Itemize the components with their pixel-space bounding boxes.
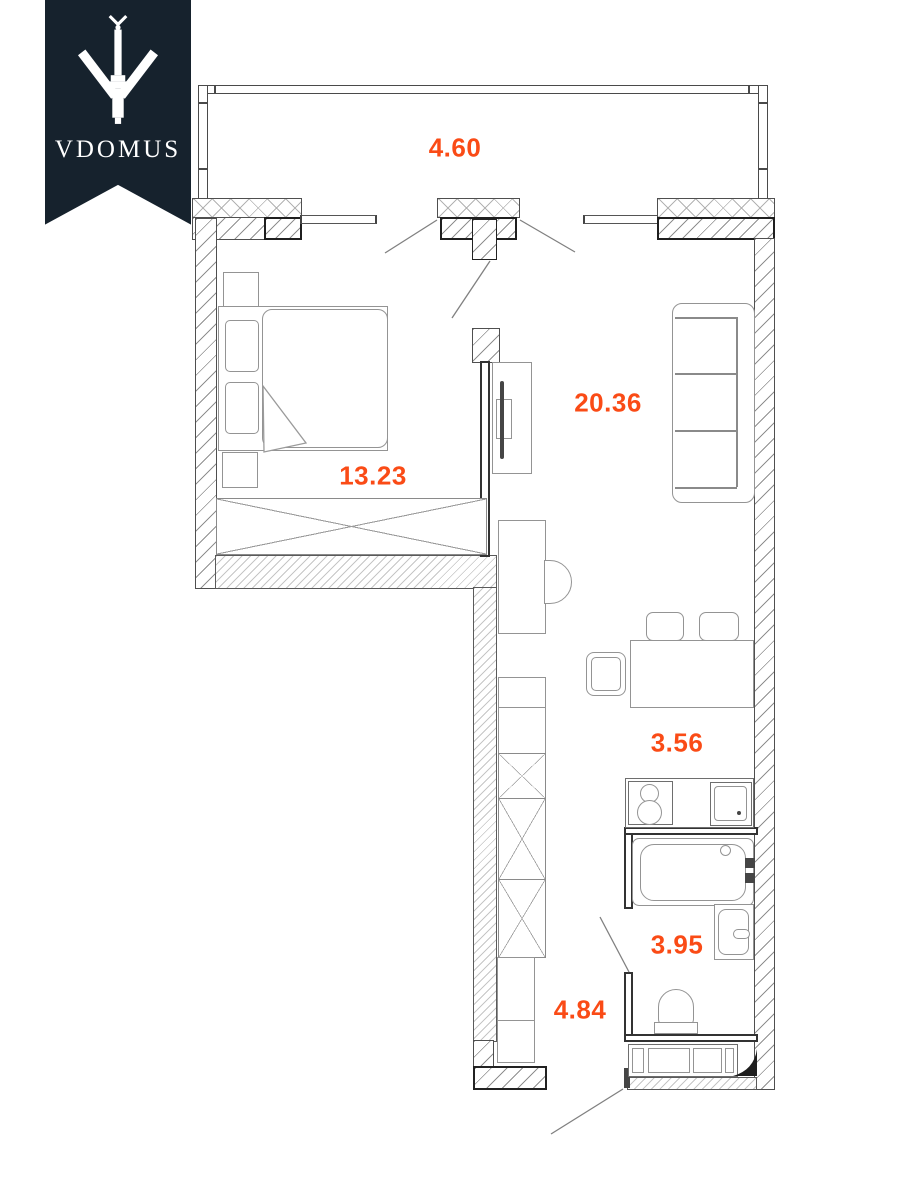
logo-banner: VDOMUS — [45, 0, 191, 234]
corridor-cabinet — [498, 707, 546, 754]
balcony-glazing-top — [200, 85, 767, 94]
corridor-wardrobe — [498, 753, 546, 799]
bathroom-wall-top — [624, 827, 758, 835]
sofa-backrest-line — [736, 317, 738, 487]
desk — [498, 520, 546, 634]
dining-table — [630, 640, 754, 708]
sofa-armrest-line — [675, 487, 737, 489]
balcony-glazing-right — [758, 85, 768, 215]
tv-mount — [496, 399, 512, 439]
corridor-cabinet — [497, 957, 535, 1021]
wall-corridor-left — [473, 587, 497, 1042]
balcony-door-swing-left — [385, 220, 437, 253]
kitchen-sink — [710, 782, 752, 826]
wall-left — [195, 218, 217, 589]
glazing-mullion — [758, 168, 768, 170]
bed-mattress — [262, 309, 388, 448]
entry-closet-door — [648, 1048, 690, 1073]
room-label-balcony: 4.60 — [429, 133, 482, 164]
balcony-door-stem — [472, 219, 497, 260]
living-window — [583, 215, 659, 224]
toilet-tank — [654, 1022, 698, 1034]
bathroom-wall-left-b — [624, 972, 633, 1037]
wall-top-right-block-inner — [657, 217, 775, 240]
entry-closet-door — [725, 1048, 734, 1073]
nightstand — [223, 272, 259, 308]
bathroom-door-swing — [600, 917, 629, 972]
partition-pier — [472, 328, 500, 363]
entry-door-leader — [551, 1089, 623, 1134]
bathroom-wall-bottom — [624, 1034, 758, 1042]
wall-top-left-pilaster — [264, 217, 302, 240]
corridor-cabinet — [498, 677, 546, 708]
entry-closet-door — [632, 1048, 644, 1073]
balcony-glazing-left — [198, 85, 208, 215]
wall-bottom — [627, 1077, 757, 1090]
dining-chair — [646, 612, 684, 641]
entry-closet-door — [693, 1048, 722, 1073]
bedroom-wardrobe — [216, 498, 487, 555]
nightstand — [222, 452, 258, 488]
kitchen-sink-basin — [714, 786, 747, 821]
glazing-mullion — [758, 102, 768, 104]
corridor-wardrobe — [498, 798, 546, 880]
wall-center-pier — [437, 198, 520, 218]
wall-entry-left-foot — [473, 1066, 547, 1090]
kitchen-sink-drain — [737, 811, 741, 815]
sofa-seat-line — [675, 373, 737, 375]
room-label-kitchen: 3.56 — [651, 728, 704, 759]
floor-plan-page: 4.60 20.36 13.23 3.56 3.95 4.84 VDOMUS — [0, 0, 900, 1200]
wall-top-left-block — [192, 198, 302, 218]
bathtub-tap — [745, 873, 755, 883]
bathtub-tap — [745, 858, 755, 868]
glazing-mullion — [748, 85, 750, 94]
washbasin-tap — [733, 929, 750, 939]
room-label-bedroom: 13.23 — [339, 461, 407, 492]
brand-name: VDOMUS — [45, 136, 191, 164]
dining-chair — [586, 652, 626, 696]
corridor-cabinet — [497, 1020, 535, 1063]
room-label-living: 20.36 — [574, 388, 642, 419]
wall-right — [754, 238, 775, 1090]
room-label-bathroom: 3.95 — [651, 930, 704, 961]
room-label-hallway: 4.84 — [554, 995, 607, 1026]
sofa — [672, 303, 755, 503]
wall-bedroom-bottom — [215, 555, 497, 589]
sofa-seat-line — [675, 430, 737, 432]
sofa-armrest-line — [675, 317, 737, 319]
dining-chair-seat — [591, 657, 621, 691]
balcony-door-swing-right — [520, 220, 575, 252]
pillow — [225, 320, 259, 372]
bathtub-drain — [720, 845, 731, 856]
pillow — [225, 382, 259, 434]
desk-chair — [544, 560, 572, 604]
corridor-wardrobe — [498, 879, 546, 958]
glazing-mullion — [214, 85, 216, 94]
bedroom-window — [300, 215, 377, 224]
glazing-mullion — [198, 102, 208, 104]
dining-chair — [699, 612, 739, 641]
glazing-mullion — [198, 168, 208, 170]
monument-icon — [66, 14, 170, 126]
bedroom-door-swing — [452, 261, 490, 318]
stove-burner — [637, 800, 662, 825]
tv-screen — [500, 381, 504, 459]
wall-top-right-block — [657, 198, 775, 218]
